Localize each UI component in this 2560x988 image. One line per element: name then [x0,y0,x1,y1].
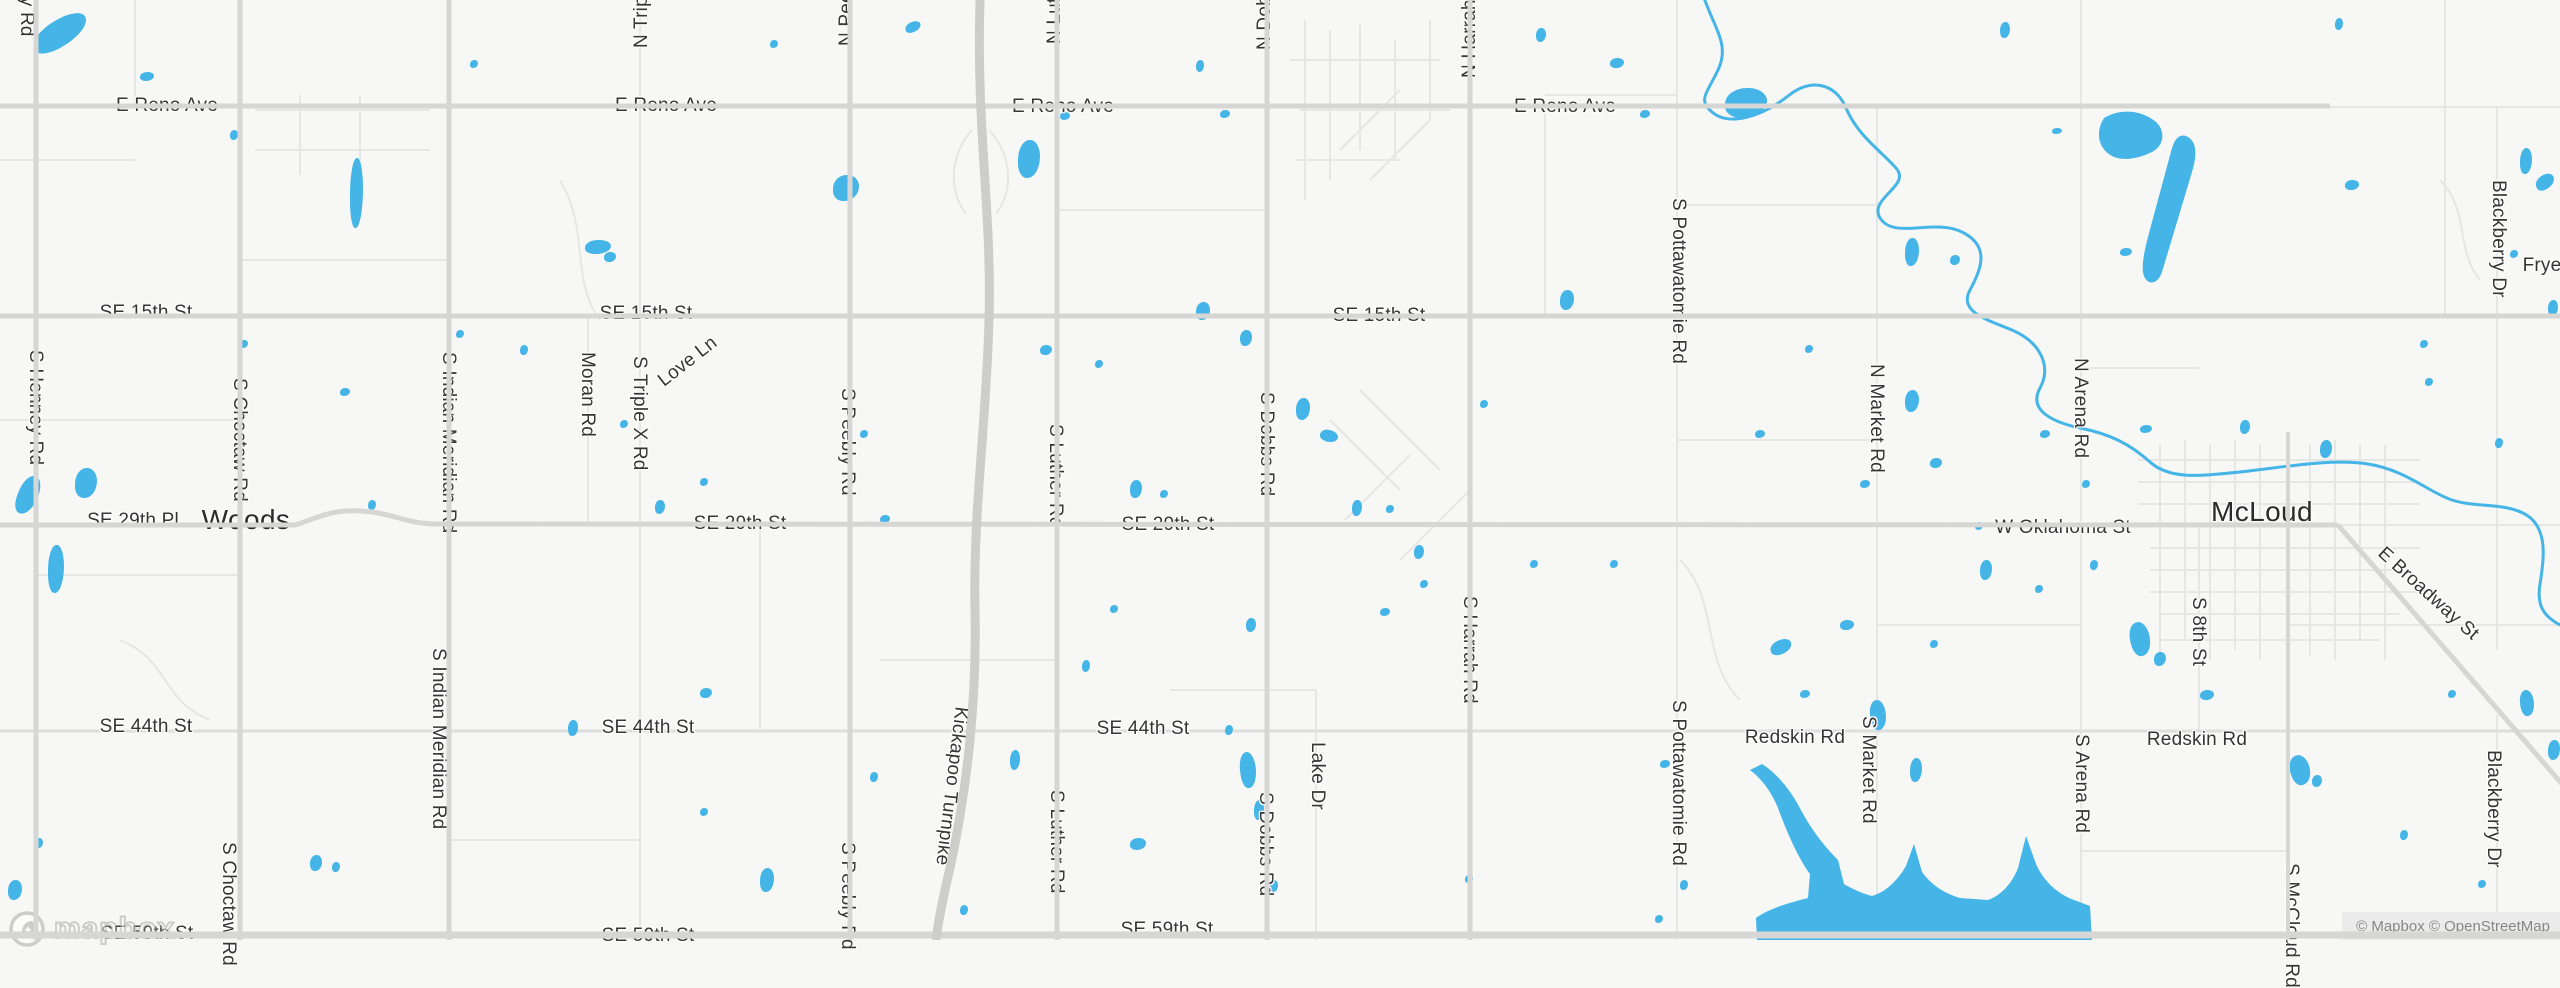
map-canvas[interactable]: E Reno AveE Reno AveE Reno AveE Reno Ave… [0,0,2560,940]
major-roads [0,0,2560,940]
kickapoo-turnpike-road [936,0,989,940]
major-road-network [0,0,2560,940]
